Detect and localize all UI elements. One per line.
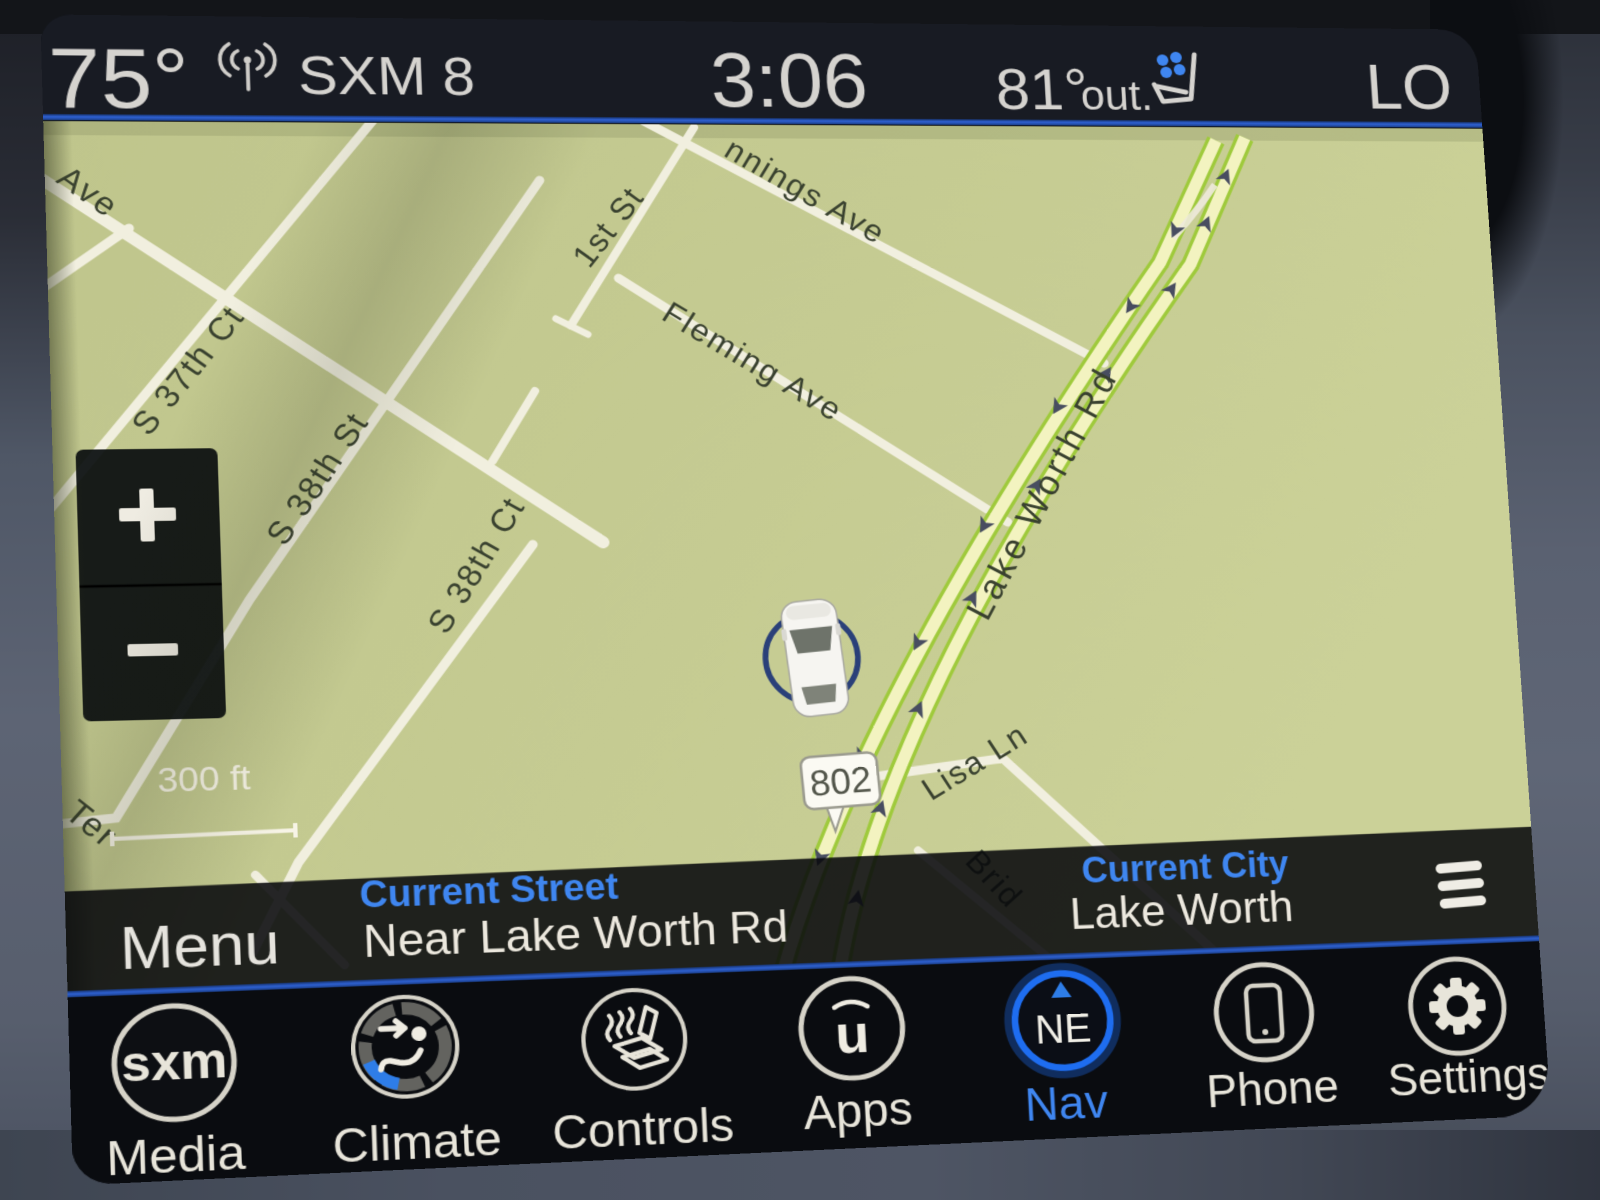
svg-text:NE: NE <box>1034 1005 1093 1053</box>
svg-text:u: u <box>834 1002 871 1065</box>
svg-text:Apps: Apps <box>802 1083 913 1140</box>
svg-text:LO: LO <box>1364 52 1455 122</box>
svg-text:Climate: Climate <box>332 1113 503 1174</box>
svg-text:Settings: Settings <box>1386 1049 1551 1106</box>
svg-text:Phone: Phone <box>1205 1061 1340 1118</box>
svg-text:3:06: 3:06 <box>708 36 870 122</box>
svg-text:Controls: Controls <box>551 1099 735 1160</box>
svg-text:Nav: Nav <box>1023 1077 1109 1132</box>
svg-text:Media: Media <box>106 1126 247 1185</box>
svg-text:81°: 81° <box>994 55 1090 122</box>
svg-text:out.: out. <box>1079 71 1153 119</box>
svg-text:75°: 75° <box>47 31 191 123</box>
svg-text:sxm: sxm <box>120 1032 228 1093</box>
svg-text:SXM 8: SXM 8 <box>297 45 476 107</box>
